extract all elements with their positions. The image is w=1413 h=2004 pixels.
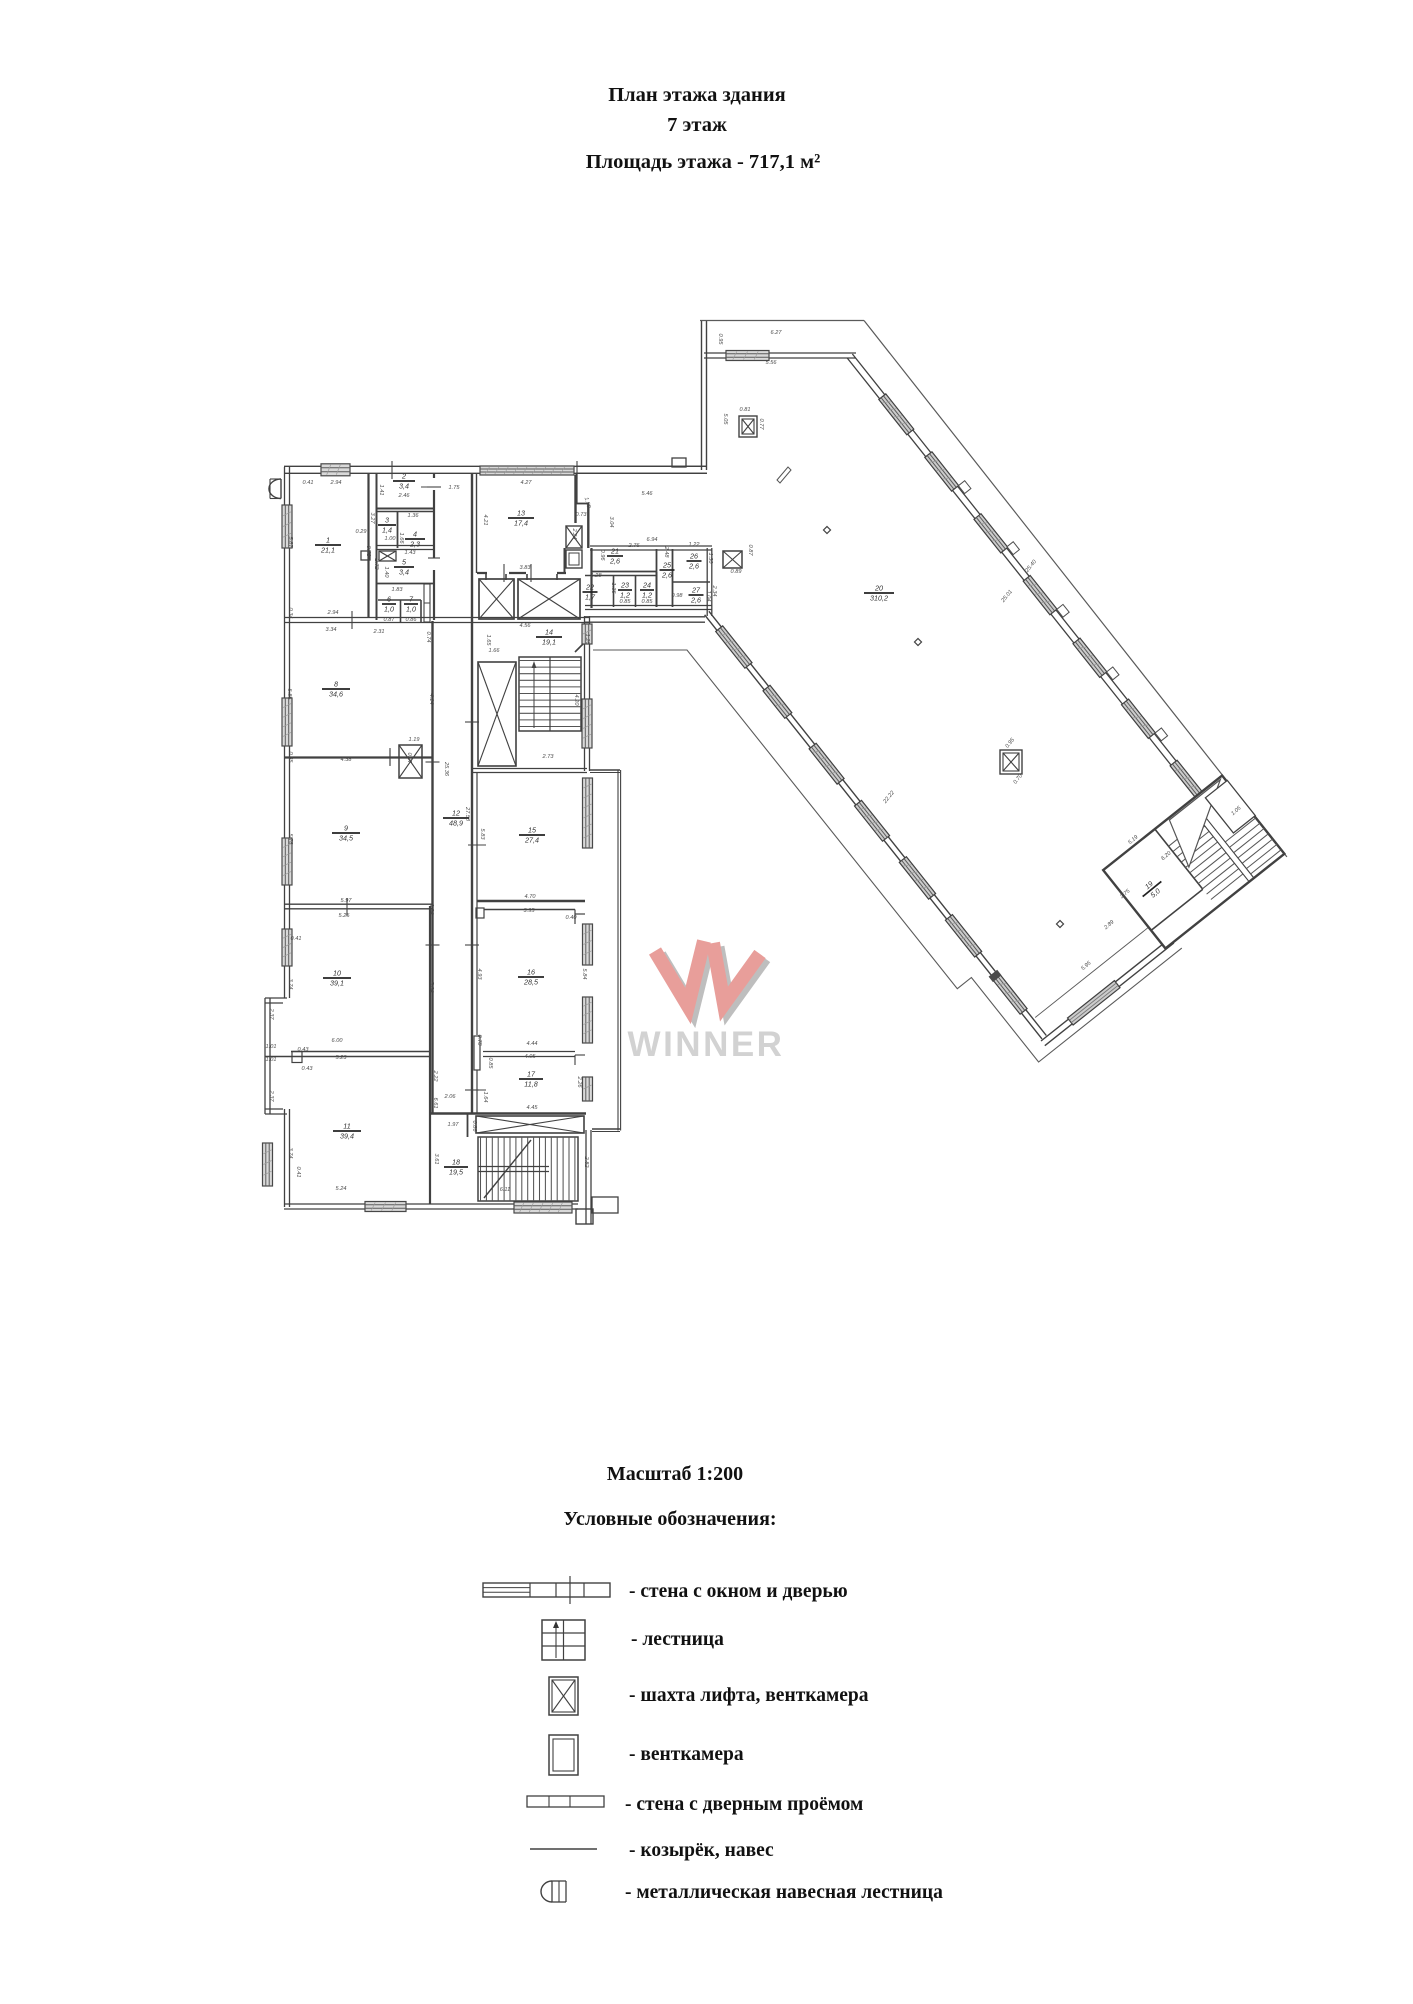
svg-text:3,4: 3,4 — [399, 568, 409, 577]
svg-text:0.86: 0.86 — [406, 617, 418, 623]
svg-text:6.61: 6.61 — [432, 1098, 438, 1109]
svg-text:3.74: 3.74 — [287, 979, 293, 990]
svg-text:1.36: 1.36 — [610, 583, 616, 595]
svg-text:4.20: 4.20 — [573, 695, 579, 707]
svg-text:5.46: 5.46 — [642, 491, 654, 497]
svg-text:0.41: 0.41 — [365, 546, 371, 557]
svg-text:25.40: 25.40 — [1024, 558, 1039, 574]
svg-text:4.45: 4.45 — [527, 1105, 539, 1111]
svg-text:5.84: 5.84 — [581, 969, 587, 980]
svg-text:2,6: 2,6 — [609, 557, 620, 566]
svg-text:4.27: 4.27 — [521, 480, 533, 486]
svg-text:2,6: 2,6 — [688, 562, 699, 571]
svg-text:5.64: 5.64 — [428, 982, 434, 993]
svg-text:1.40: 1.40 — [383, 567, 389, 579]
svg-text:5: 5 — [402, 558, 407, 567]
svg-text:0.89: 0.89 — [731, 569, 742, 575]
svg-text:2.06: 2.06 — [444, 1094, 457, 1100]
svg-text:1,0: 1,0 — [384, 605, 394, 614]
svg-text:4.21: 4.21 — [482, 515, 488, 526]
svg-text:3.83: 3.83 — [520, 565, 532, 571]
svg-text:4.93: 4.93 — [476, 969, 482, 981]
svg-text:0.40: 0.40 — [566, 915, 578, 921]
svg-text:5.24: 5.24 — [336, 1186, 347, 1192]
svg-text:0.87: 0.87 — [747, 545, 753, 557]
svg-text:13: 13 — [517, 509, 525, 518]
svg-text:7: 7 — [409, 595, 414, 604]
svg-text:39,1: 39,1 — [330, 979, 344, 988]
svg-text:0.87: 0.87 — [384, 617, 396, 623]
svg-text:5.87: 5.87 — [287, 537, 293, 549]
svg-text:3.27: 3.27 — [369, 513, 375, 525]
svg-text:- шахта лифта, венткамера: - шахта лифта, венткамера — [629, 1685, 869, 1706]
svg-text:1,7: 1,7 — [585, 593, 596, 602]
svg-text:3.34: 3.34 — [326, 627, 337, 633]
svg-text:3.74: 3.74 — [287, 1148, 293, 1159]
svg-text:28,5: 28,5 — [523, 978, 539, 987]
svg-text:0.86: 0.86 — [471, 1121, 477, 1133]
svg-text:- венткамера: - венткамера — [629, 1744, 744, 1765]
svg-text:2: 2 — [401, 472, 406, 481]
svg-text:6.00: 6.00 — [332, 1038, 344, 1044]
svg-text:1.01: 1.01 — [266, 1044, 277, 1050]
svg-text:1,0: 1,0 — [406, 605, 416, 614]
svg-text:4.14: 4.14 — [428, 694, 434, 705]
svg-text:2.94: 2.94 — [330, 480, 342, 486]
svg-text:22.22: 22.22 — [882, 789, 897, 805]
svg-text:- лестница: - лестница — [631, 1629, 724, 1650]
svg-text:0.41: 0.41 — [303, 480, 314, 486]
svg-text:0.97: 0.97 — [406, 753, 412, 765]
svg-text:6.27: 6.27 — [771, 330, 783, 336]
svg-text:11,8: 11,8 — [524, 1080, 537, 1089]
svg-text:1.66: 1.66 — [489, 648, 501, 654]
svg-text:6.94: 6.94 — [647, 537, 658, 543]
svg-text:15: 15 — [528, 826, 537, 835]
svg-text:План этажа здания: План этажа здания — [608, 84, 786, 106]
svg-text:0.78: 0.78 — [476, 1035, 482, 1047]
svg-text:5.83: 5.83 — [479, 829, 485, 841]
svg-text:1.65: 1.65 — [485, 635, 491, 647]
svg-text:2.31: 2.31 — [373, 629, 385, 635]
svg-text:0.85: 0.85 — [487, 1058, 493, 1070]
svg-text:19,5: 19,5 — [449, 1168, 464, 1177]
svg-text:3.61: 3.61 — [433, 1154, 439, 1165]
svg-text:5.78: 5.78 — [287, 834, 293, 846]
svg-text:4.56: 4.56 — [520, 623, 532, 629]
svg-text:2.82: 2.82 — [583, 1156, 589, 1169]
svg-text:1.22: 1.22 — [689, 542, 701, 548]
svg-text:2.37: 2.37 — [268, 1008, 274, 1021]
svg-text:2.76: 2.76 — [628, 543, 641, 549]
svg-text:WINNER: WINNER — [628, 1025, 785, 1064]
svg-text:5.56: 5.56 — [766, 360, 778, 366]
svg-text:1.75: 1.75 — [449, 485, 461, 491]
svg-text:8: 8 — [334, 680, 338, 689]
svg-text:- стена с дверным проёмом: - стена с дверным проёмом — [625, 1794, 863, 1815]
svg-text:0.43: 0.43 — [302, 1066, 314, 1072]
svg-text:2,6: 2,6 — [661, 571, 672, 580]
svg-text:0.85: 0.85 — [642, 599, 654, 605]
svg-text:39,4: 39,4 — [340, 1132, 354, 1141]
svg-text:34,6: 34,6 — [329, 690, 343, 699]
svg-text:1.01: 1.01 — [266, 1057, 277, 1063]
svg-text:310,2: 310,2 — [870, 594, 888, 603]
svg-text:26: 26 — [689, 552, 698, 561]
svg-text:5.97: 5.97 — [341, 898, 353, 904]
svg-text:1.19: 1.19 — [409, 737, 420, 743]
svg-text:27: 27 — [691, 586, 701, 595]
svg-text:17,4: 17,4 — [514, 519, 528, 528]
svg-text:3.95: 3.95 — [524, 908, 536, 914]
svg-text:25.36: 25.36 — [443, 761, 449, 777]
svg-text:0.81: 0.81 — [740, 407, 751, 413]
svg-text:48,9: 48,9 — [449, 819, 463, 828]
svg-text:0.41: 0.41 — [295, 1167, 301, 1178]
svg-text:0.74: 0.74 — [425, 632, 431, 643]
svg-text:- козырёк, навес: - козырёк, навес — [629, 1840, 774, 1861]
svg-text:17: 17 — [527, 1070, 536, 1079]
svg-text:5.95: 5.95 — [1080, 960, 1093, 972]
svg-text:Площадь этажа - 717,1 м²: Площадь этажа - 717,1 м² — [586, 151, 821, 173]
svg-text:1.66: 1.66 — [398, 533, 404, 545]
svg-text:3,4: 3,4 — [399, 482, 409, 491]
svg-text:1.41: 1.41 — [378, 485, 384, 496]
svg-text:4.70: 4.70 — [525, 894, 537, 900]
svg-text:Масштаб 1:200: Масштаб 1:200 — [607, 1463, 743, 1485]
svg-text:27.58: 27.58 — [464, 806, 470, 822]
svg-text:1.43: 1.43 — [405, 550, 417, 556]
svg-text:0.85: 0.85 — [620, 599, 632, 605]
svg-text:1.00: 1.00 — [385, 536, 397, 542]
svg-text:2.22: 2.22 — [432, 1070, 438, 1083]
svg-text:1.26: 1.26 — [584, 634, 590, 646]
svg-text:25: 25 — [662, 561, 672, 570]
svg-text:0.73: 0.73 — [576, 512, 588, 518]
svg-text:22: 22 — [585, 583, 594, 592]
svg-text:2.73: 2.73 — [542, 754, 555, 760]
svg-text:1.58: 1.58 — [583, 497, 592, 510]
svg-text:2.34: 2.34 — [711, 585, 717, 597]
svg-text:21: 21 — [610, 547, 619, 556]
svg-text:3: 3 — [385, 516, 389, 525]
svg-text:20: 20 — [874, 584, 883, 593]
svg-text:0.98: 0.98 — [672, 593, 684, 599]
svg-text:2.46: 2.46 — [398, 493, 411, 499]
svg-text:34,5: 34,5 — [339, 834, 354, 843]
svg-text:0.95: 0.95 — [717, 334, 723, 346]
svg-text:6: 6 — [387, 595, 391, 604]
svg-text:4.44: 4.44 — [527, 1041, 538, 1047]
svg-text:0.35: 0.35 — [287, 752, 293, 764]
svg-text:Условные обозначения:: Условные обозначения: — [563, 1508, 776, 1530]
svg-text:0.29: 0.29 — [356, 529, 367, 535]
svg-text:24: 24 — [642, 581, 651, 590]
svg-text:11: 11 — [343, 1122, 350, 1131]
svg-text:16: 16 — [527, 968, 535, 977]
svg-text:1.30: 1.30 — [707, 553, 713, 565]
svg-text:10: 10 — [333, 969, 341, 978]
svg-text:5.85: 5.85 — [286, 689, 292, 701]
svg-text:2.24: 2.24 — [571, 528, 577, 540]
svg-text:1.04: 1.04 — [705, 591, 711, 602]
svg-text:0.41: 0.41 — [291, 936, 302, 942]
svg-text:19,1: 19,1 — [542, 638, 556, 647]
svg-text:2,3: 2,3 — [409, 540, 420, 549]
svg-text:5.23: 5.23 — [336, 1055, 348, 1061]
svg-text:4.05: 4.05 — [525, 1054, 537, 1060]
svg-text:3.04: 3.04 — [608, 517, 614, 528]
svg-text:4.38: 4.38 — [341, 757, 353, 763]
svg-text:1.28: 1.28 — [591, 573, 603, 579]
svg-text:7 этаж: 7 этаж — [667, 114, 727, 136]
svg-text:2,6: 2,6 — [690, 596, 701, 605]
svg-text:5.05: 5.05 — [722, 414, 728, 426]
svg-text:5.25: 5.25 — [339, 913, 351, 919]
svg-text:0.34: 0.34 — [287, 608, 293, 619]
svg-text:2.37: 2.37 — [268, 1090, 274, 1103]
svg-text:0.96: 0.96 — [599, 550, 605, 562]
svg-text:0.43: 0.43 — [298, 1047, 310, 1053]
svg-text:1.83: 1.83 — [392, 587, 404, 593]
svg-text:2.26: 2.26 — [576, 1076, 582, 1089]
svg-text:0.34: 0.34 — [428, 904, 434, 915]
svg-text:27,4: 27,4 — [524, 836, 539, 845]
svg-text:2.48: 2.48 — [663, 546, 669, 559]
svg-text:1.64: 1.64 — [482, 1092, 488, 1103]
svg-text:2.94: 2.94 — [327, 610, 339, 616]
svg-text:2.72: 2.72 — [373, 558, 379, 571]
svg-text:6.11: 6.11 — [500, 1187, 510, 1193]
svg-text:0.95: 0.95 — [1004, 737, 1016, 750]
svg-text:23: 23 — [620, 581, 629, 590]
svg-text:18: 18 — [452, 1158, 460, 1167]
svg-text:25.01: 25.01 — [1000, 589, 1014, 604]
svg-text:1.36: 1.36 — [408, 513, 420, 519]
svg-text:1,4: 1,4 — [382, 526, 392, 535]
svg-text:21,1: 21,1 — [320, 546, 335, 555]
svg-text:9: 9 — [344, 824, 348, 833]
svg-text:2.89: 2.89 — [1102, 919, 1115, 931]
svg-text:- металлическая навесная лестн: - металлическая навесная лестница — [625, 1882, 943, 1903]
svg-text:0.77: 0.77 — [758, 419, 764, 431]
svg-text:1.97: 1.97 — [448, 1122, 460, 1128]
svg-text:- стена с окном и дверью: - стена с окном и дверью — [629, 1581, 848, 1602]
svg-text:12: 12 — [452, 809, 460, 818]
svg-text:1: 1 — [326, 536, 330, 545]
svg-text:4: 4 — [413, 530, 417, 539]
svg-text:14: 14 — [545, 628, 553, 637]
